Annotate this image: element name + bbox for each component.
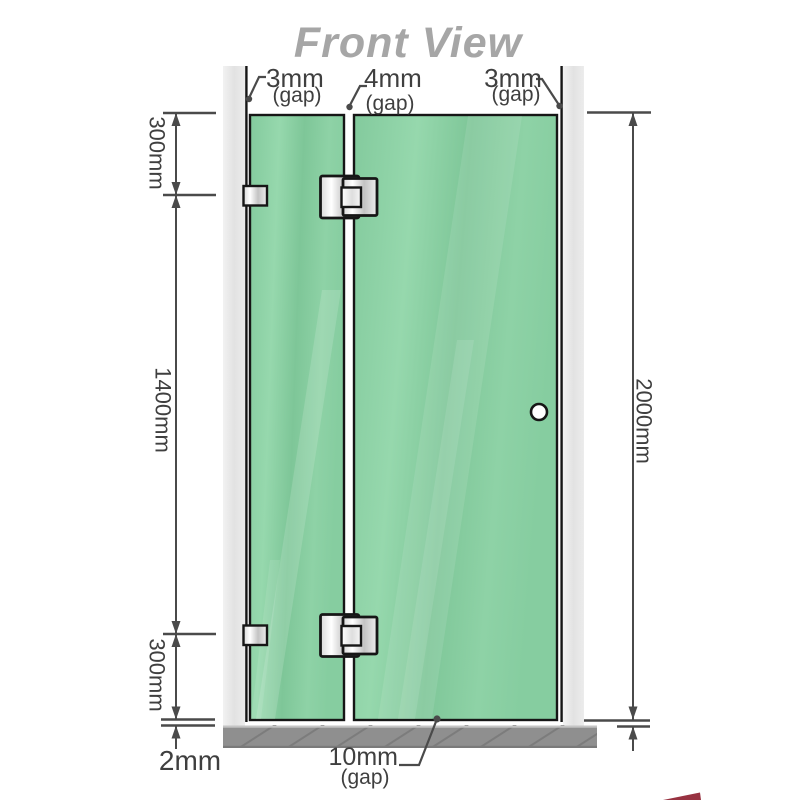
- right-wall-channel: [562, 66, 584, 726]
- dim-left-top: 300mm: [145, 116, 170, 189]
- dim-floor-clearance: 2mm: [159, 745, 221, 776]
- door-glass-panel: [354, 115, 557, 720]
- dim-overall-height: 2000mm: [632, 378, 657, 464]
- dim-left-bottom: 300mm: [145, 638, 170, 711]
- dim-left-middle: 1400mm: [151, 367, 176, 453]
- bottom-wall-bracket: [244, 626, 268, 646]
- door-knob: [531, 404, 547, 420]
- diagram-title: Front View: [294, 19, 524, 67]
- red-cursor-fragment: [663, 793, 701, 800]
- shower-tray: [223, 723, 614, 750]
- gap-bottom-label: (gap): [340, 766, 389, 789]
- gap-top-left-label: (gap): [272, 84, 321, 107]
- gap-top-middle-label: (gap): [365, 92, 414, 115]
- top-wall-bracket: [244, 186, 268, 206]
- gap-top-middle-value: 4mm: [364, 63, 422, 93]
- top-hinge: [321, 176, 378, 218]
- gap-leader-top-left: [246, 77, 266, 102]
- front-view-diagram: Front View 3mm (gap) 4mm (gap) 3mm (gap)…: [0, 0, 800, 800]
- bottom-hinge: [321, 615, 378, 657]
- diagram-canvas: Front View 3mm (gap) 4mm (gap) 3mm (gap)…: [0, 0, 800, 800]
- gap-top-right-label: (gap): [491, 83, 540, 106]
